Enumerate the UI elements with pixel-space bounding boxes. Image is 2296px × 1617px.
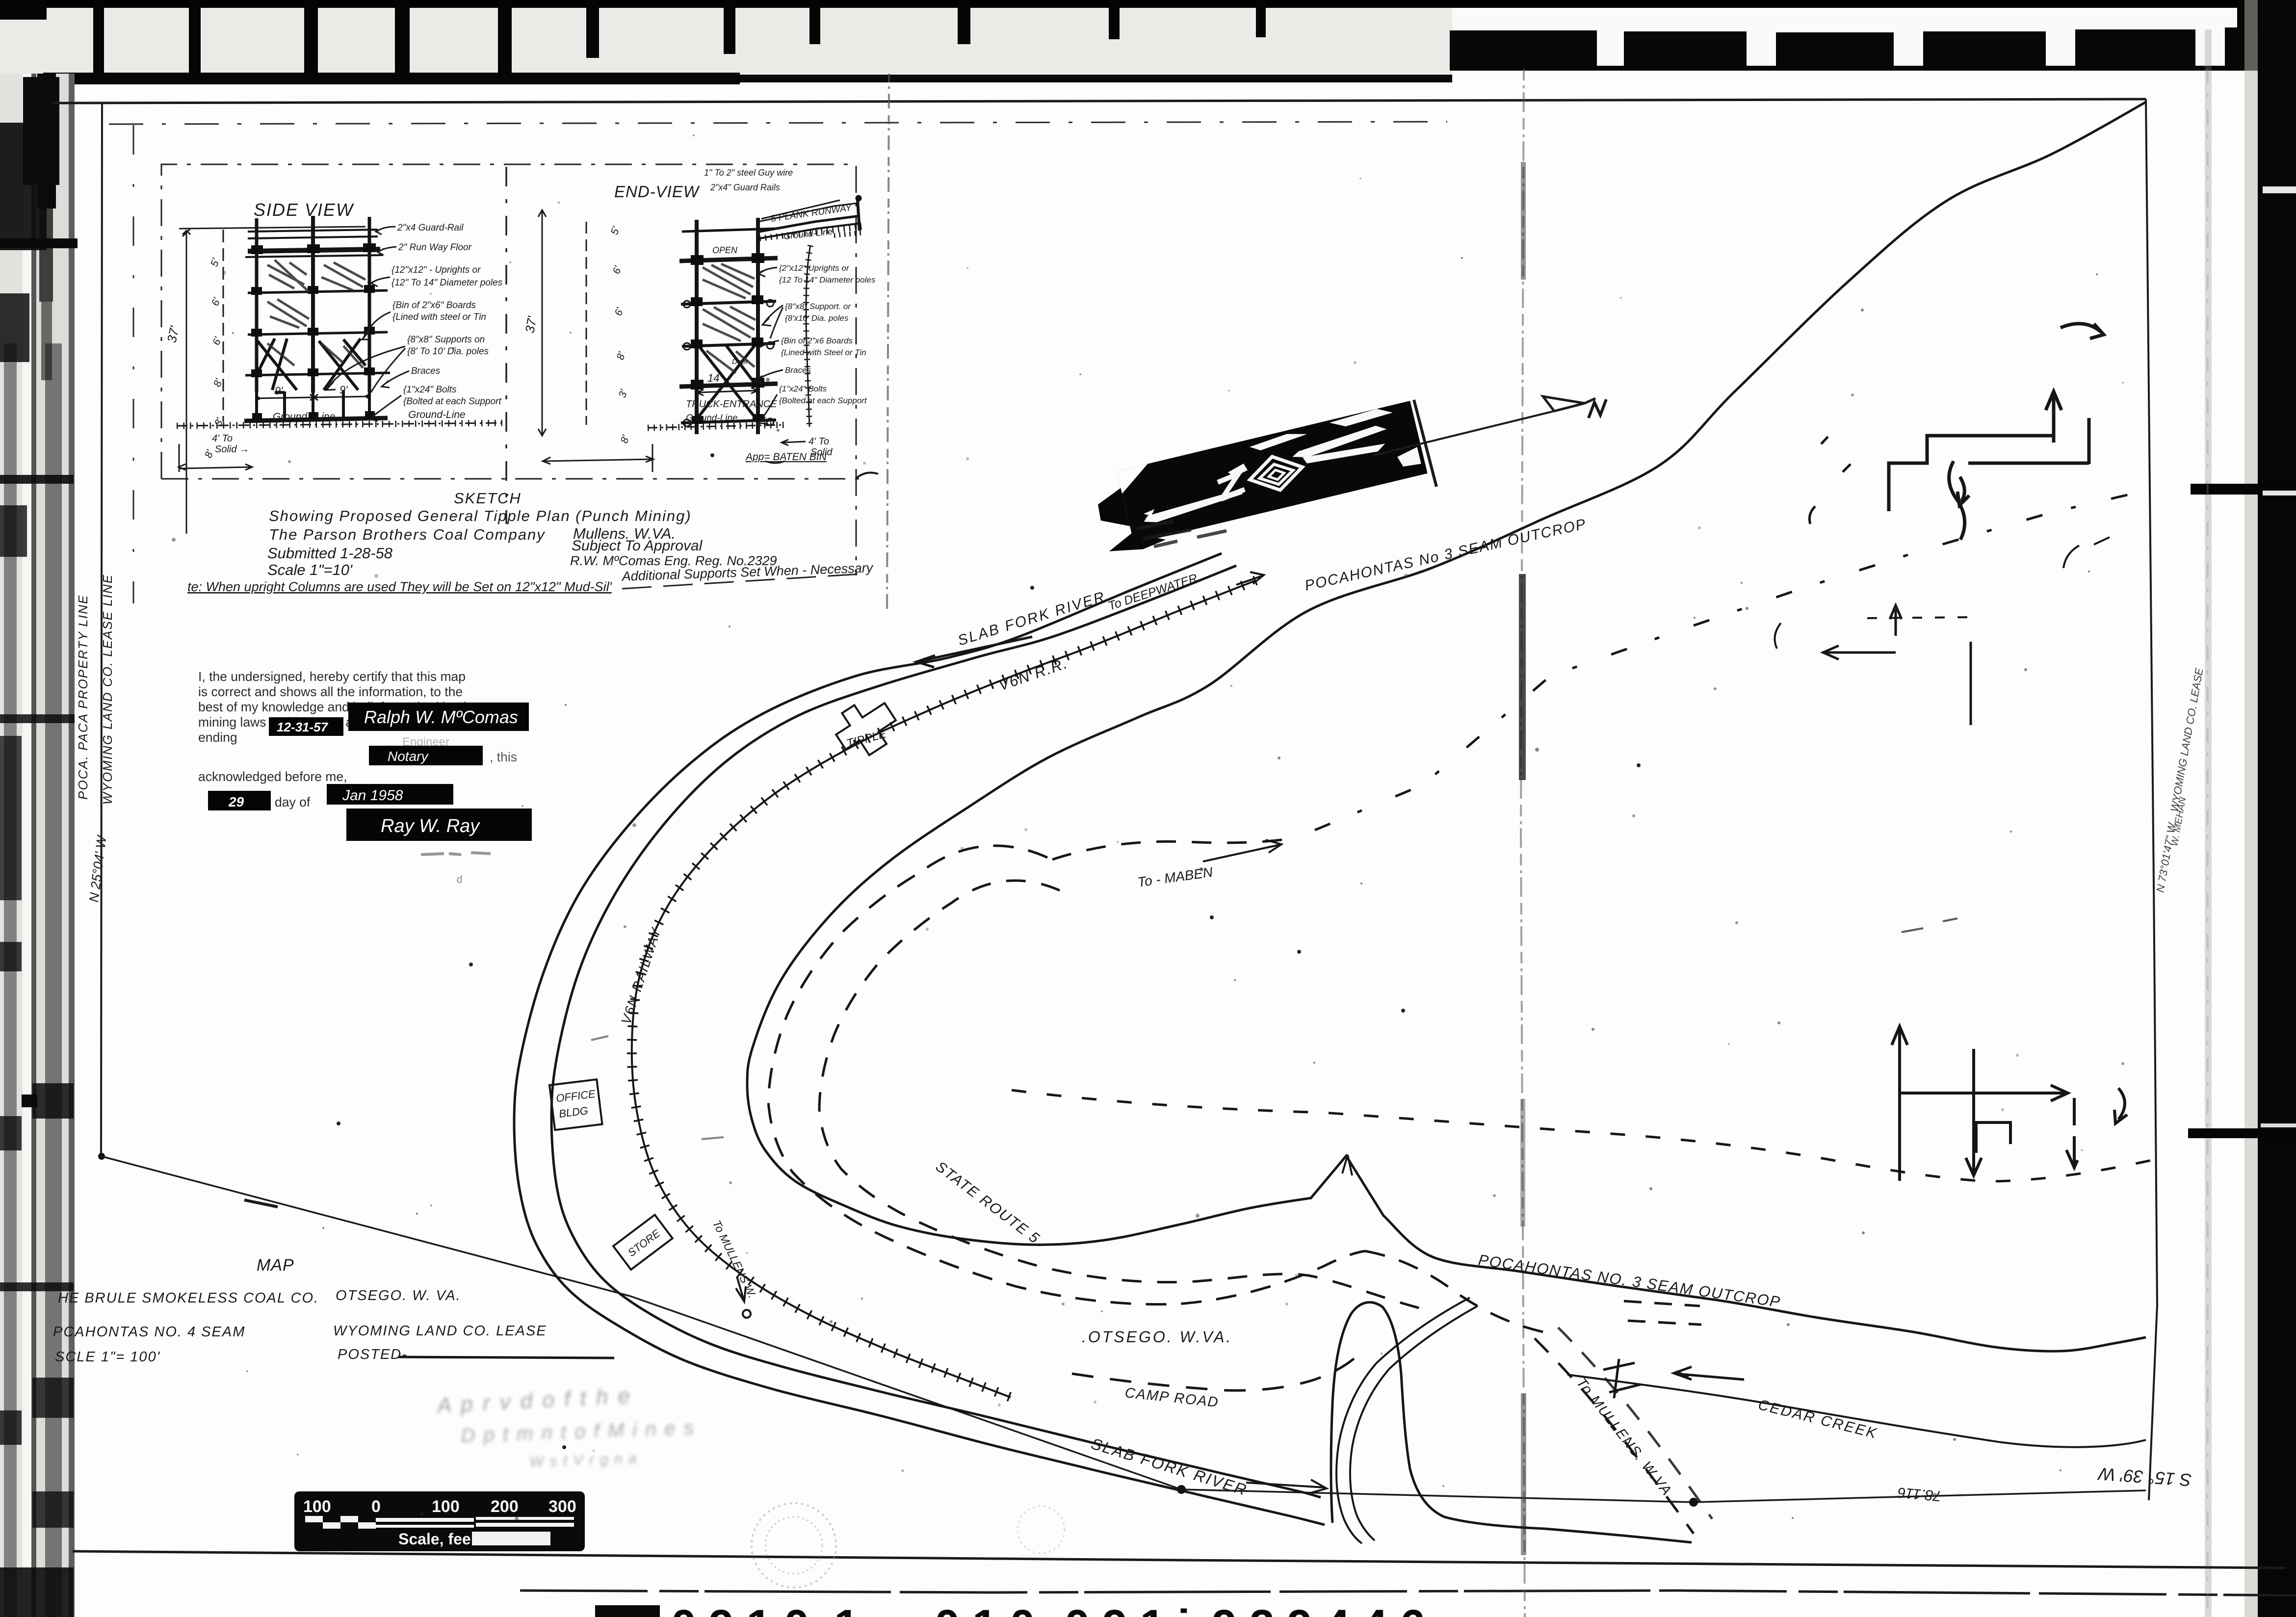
svg-text:Ground-Line: Ground-Line [408, 409, 466, 420]
svg-text:WYOMING LAND CO. LEASE LIN: WYOMING LAND CO. LEASE LINE [100, 574, 115, 805]
svg-text:Jan 1958: Jan 1958 [342, 787, 403, 804]
svg-text:ending: ending [198, 730, 237, 745]
svg-text:Braces: Braces [411, 366, 441, 376]
svg-text:4' To: 4' To [212, 433, 233, 444]
svg-text:0 9 1 i: 0 9 1 i [1065, 1601, 1190, 1617]
svg-text:POCA. PACA PROPERTY LINE: POCA. PACA PROPERTY LINE [76, 595, 90, 800]
svg-text:{Lined with steel or Tin: {Lined with steel or Tin [392, 312, 486, 322]
svg-text:{12"x12" - Uprights or: {12"x12" - Uprights or [391, 265, 481, 275]
svg-text:1" To 2" steel Guy wire: 1" To 2" steel Guy wire [704, 168, 793, 178]
svg-text:acknowledged before me,: acknowledged before me, [198, 769, 347, 784]
svg-text:Scale, fee: Scale, fee [398, 1530, 471, 1548]
svg-text:Notary: Notary [388, 749, 429, 764]
svg-text:TRUCK-ENTRANCE: TRUCK-ENTRANCE [686, 399, 777, 410]
svg-text:SCLE 1"= 100': SCLE 1"= 100' [55, 1349, 160, 1365]
svg-text:{Bin of 2"x6" Boards: {Bin of 2"x6" Boards [392, 300, 476, 311]
svg-text:0 9 1 0: 0 9 1 0 [671, 1601, 809, 1617]
svg-text:{8'x10' Dia. poles: {8'x10' Dia. poles [785, 313, 849, 323]
svg-text:9 2 9 4 4 6: 9 2 9 4 4 6 [1212, 1601, 1425, 1617]
svg-text:I, the undersigned, hereby cer: I, the undersigned, hereby certify that … [198, 669, 466, 684]
svg-text:29: 29 [228, 794, 244, 809]
svg-text:1: 1 [834, 1601, 859, 1617]
svg-text:200: 200 [491, 1497, 519, 1516]
svg-text:HE BRULE SMOKELESS COAL CO.: HE BRULE SMOKELESS COAL CO. [58, 1290, 319, 1306]
svg-text:100: 100 [432, 1497, 460, 1516]
svg-text:{Bin of 2"x6 Boards: {Bin of 2"x6 Boards [781, 336, 853, 345]
svg-text:4' To: 4' To [809, 436, 829, 447]
svg-text:App= BATEN BIN: App= BATEN BIN [745, 451, 827, 463]
svg-text:Door: Door [732, 358, 749, 366]
svg-text:2" Run Way Floor: 2" Run Way Floor [398, 242, 472, 253]
svg-text:END-VIEW: END-VIEW [614, 183, 700, 201]
svg-text:.OTSEGO. W.VA.: .OTSEGO. W.VA. [1082, 1328, 1232, 1346]
svg-text:, this: , this [490, 750, 517, 764]
svg-text:SIDE VIEW: SIDE VIEW [254, 200, 354, 220]
svg-text:9': 9' [275, 385, 283, 397]
svg-text:day of: day of [275, 795, 311, 809]
svg-text:OTSEGO. W. VA.: OTSEGO. W. VA. [336, 1288, 461, 1304]
svg-text:300: 300 [548, 1497, 576, 1516]
svg-text:SKETCH: SKETCH [454, 490, 522, 507]
svg-text:PCAHONTAS NO. 4 SEAM: PCAHONTAS NO. 4 SEAM [53, 1324, 245, 1340]
svg-text:12-31-57: 12-31-57 [277, 720, 329, 734]
svg-text:POSTED-: POSTED- [338, 1347, 408, 1362]
svg-text:{1"x24" Bolts: {1"x24" Bolts [403, 385, 457, 395]
svg-text:Ground Line: Ground Line [273, 411, 335, 422]
svg-text:2"x4" Guard Rails: 2"x4" Guard Rails [710, 183, 780, 192]
svg-text:WYOMING LAND CO. LEASE: WYOMING LAND CO. LEASE [333, 1323, 547, 1339]
svg-text:The Parson Brothers Coal Compa: The Parson Brothers Coal Company [269, 526, 546, 543]
svg-text:14': 14' [707, 372, 722, 384]
svg-text:Submitted 1-28-58: Submitted 1-28-58 [267, 545, 393, 562]
svg-text:{1"x24" Bolts: {1"x24" Bolts [779, 384, 827, 393]
svg-text:Ray W. Ray: Ray W. Ray [381, 816, 480, 836]
svg-text:Subject To Approval: Subject To Approval [572, 538, 703, 554]
svg-text:2"x4 Guard-Rail: 2"x4 Guard-Rail [397, 223, 464, 233]
svg-text:{12 To 14" Diameter poles: {12 To 14" Diameter poles [779, 275, 876, 285]
svg-text:100: 100 [303, 1497, 331, 1516]
svg-text:OPEN: OPEN [712, 245, 738, 255]
svg-text:{2"x12" Uprights or: {2"x12" Uprights or [779, 263, 850, 273]
svg-text:Ground-Line: Ground-Line [686, 413, 738, 423]
svg-text:Ralph W. MºComas: Ralph W. MºComas [364, 707, 518, 727]
svg-text:Scale 1"=10': Scale 1"=10' [267, 561, 353, 578]
svg-text:{Bolted at each Support: {Bolted at each Support [779, 396, 867, 405]
svg-text:MAP: MAP [257, 1256, 294, 1275]
svg-text:Solid →: Solid → [215, 444, 249, 455]
svg-text:{8"x8" Support. or: {8"x8" Support. or [785, 302, 851, 311]
svg-text:d: d [456, 874, 463, 887]
svg-text:0: 0 [371, 1497, 381, 1516]
svg-text:te: When upright Columns are u: te: When upright Columns are used They w… [187, 579, 612, 594]
svg-text:0 1 0: 0 1 0 [935, 1601, 1035, 1617]
svg-text:is correct and shows all the i: is correct and shows all the information… [198, 684, 463, 699]
svg-text:{8"x8" Supports on: {8"x8" Supports on [407, 335, 485, 345]
svg-text:{8' To 10' Dia. poles: {8' To 10' Dia. poles [407, 346, 489, 357]
svg-text:{12" To 14" Diameter poles: {12" To 14" Diameter poles [391, 278, 503, 288]
svg-text:{Bolted at each Support: {Bolted at each Support [403, 396, 501, 407]
svg-text:37': 37' [522, 314, 540, 334]
svg-text:Showing Proposed General Ti: Showing Proposed General Tipple Plan (Pu… [269, 507, 692, 524]
svg-text:{Lined with Steel or Tin: {Lined with Steel or Tin [781, 348, 866, 357]
svg-text:9': 9' [339, 384, 348, 396]
